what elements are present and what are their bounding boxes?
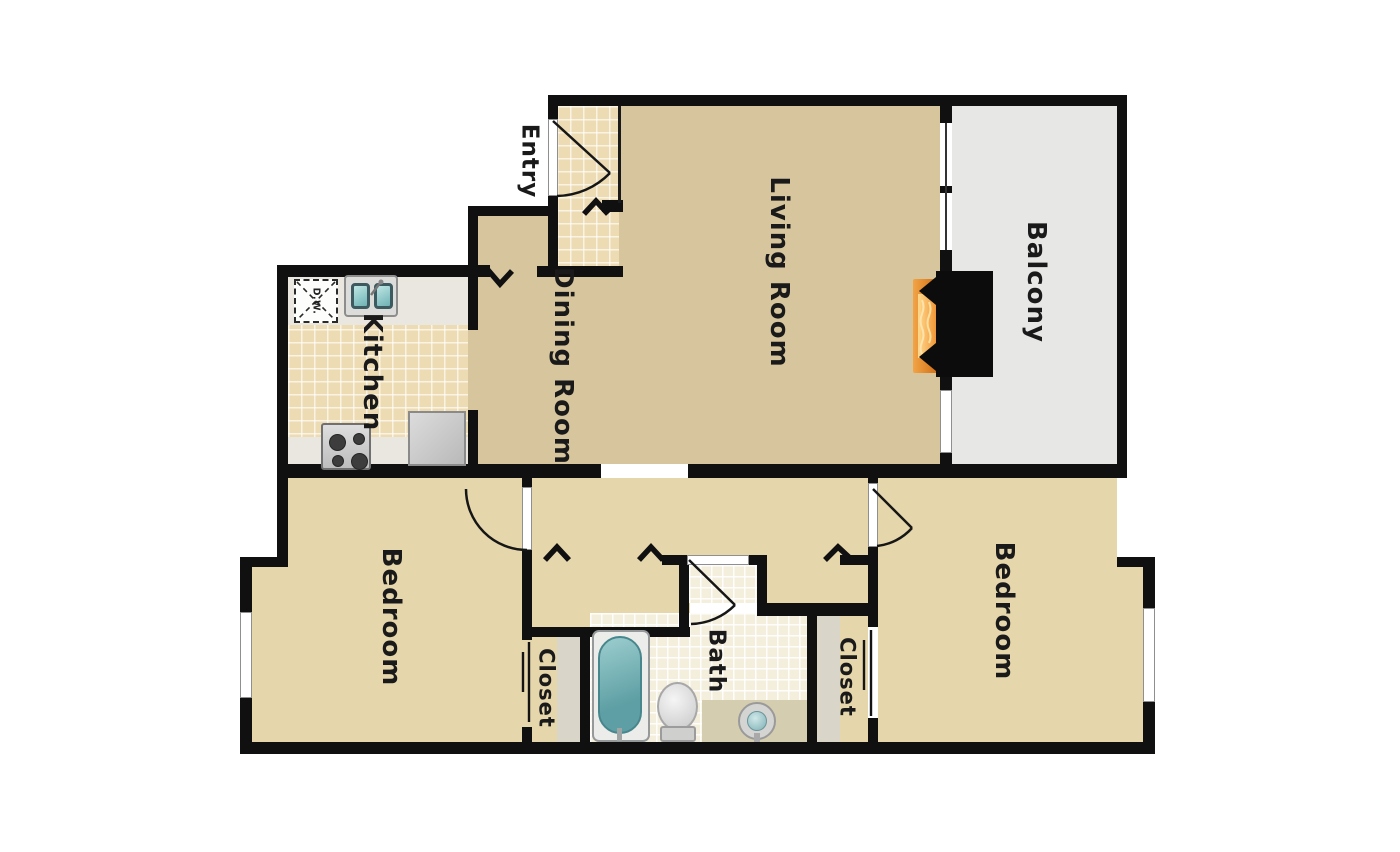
exterior-wall-step <box>240 557 288 567</box>
room-label-bedroom-right: Bedroom <box>991 542 1017 681</box>
hallway-floor <box>767 565 868 603</box>
room-label-bath: Bath <box>705 629 728 693</box>
room-label-closet-right: Closet <box>837 637 858 717</box>
bedroom-left-window <box>240 612 252 698</box>
bedroom-left-wall <box>522 550 532 640</box>
hallway-floor <box>690 478 868 565</box>
interior-wall-band <box>688 464 1127 478</box>
living-balcony-wall <box>940 453 952 478</box>
entry-wall <box>548 106 558 119</box>
living-balcony-wall <box>940 377 952 390</box>
vanity-sink-bowl <box>747 711 767 731</box>
bedroom-left-floor <box>252 567 288 742</box>
bath-wall-top <box>662 555 687 565</box>
room-label-kitchen: Kitchen <box>359 313 385 432</box>
bedroom-right-window <box>1143 608 1155 702</box>
stove-burner <box>332 455 344 467</box>
balcony-slider-window <box>940 390 952 453</box>
stove-burner <box>329 434 346 451</box>
bedroom-right-door-opening <box>868 483 878 547</box>
toilet-tank <box>660 726 696 742</box>
stove-burner <box>351 453 368 470</box>
dining-wall <box>468 206 557 216</box>
closet-right-wall-top <box>757 603 878 616</box>
refrigerator-counter-fixture <box>408 411 466 466</box>
dishwasher-label: D.W. <box>311 288 322 315</box>
bath-hall-wall <box>679 555 689 637</box>
closet-right-wall-left <box>807 603 817 754</box>
entry-tile-floor <box>557 106 619 267</box>
balcony-window-line <box>945 123 947 250</box>
exterior-wall-bottom <box>240 742 1155 754</box>
room-label-bedroom-left: Bedroom <box>378 548 404 687</box>
bath-door-opening <box>687 555 749 565</box>
room-label-entry: Entry <box>518 124 541 198</box>
entry-door-opening <box>548 119 558 196</box>
vanity-sink-fixture <box>738 702 776 740</box>
alcove-wall-stub <box>840 555 868 565</box>
exterior-wall-right <box>1143 557 1155 608</box>
living-balcony-wall <box>940 95 952 123</box>
room-label-closet-left: Closet <box>536 648 557 728</box>
bathtub-fixture <box>592 630 650 742</box>
stove-burner <box>353 433 365 445</box>
entry-divider-line <box>618 106 621 203</box>
closet-left-shelf <box>557 637 580 742</box>
bath-wall-left <box>580 627 590 754</box>
bath-tile-floor <box>689 565 757 603</box>
exterior-wall-left <box>240 698 252 754</box>
sink-basin <box>351 283 370 309</box>
toilet-fixture <box>657 682 698 731</box>
floor-plan: Entry Kitchen Dining Room Living Room Ba… <box>0 0 1400 852</box>
bedroom-right-wall <box>868 718 878 754</box>
kitchen-sink-fixture <box>344 275 398 317</box>
balcony-wall-right <box>1117 95 1127 478</box>
room-label-balcony: Balcony <box>1023 221 1049 343</box>
sink-basin <box>374 283 393 309</box>
bedroom-right-floor <box>1117 567 1143 742</box>
bedroom-left-wall <box>522 727 532 754</box>
exterior-wall-top <box>548 95 1127 106</box>
bedroom-left-wall <box>522 478 532 487</box>
living-balcony-wall <box>940 250 952 272</box>
bathtub-basin <box>598 636 642 734</box>
exterior-wall-left <box>277 265 288 567</box>
dining-room-floor <box>468 216 557 464</box>
room-label-dining-room: Dining Room <box>550 267 576 465</box>
bedroom-left-door-opening <box>522 487 532 550</box>
room-label-living-room: Living Room <box>766 176 792 367</box>
bedroom-right-wall <box>868 547 878 627</box>
